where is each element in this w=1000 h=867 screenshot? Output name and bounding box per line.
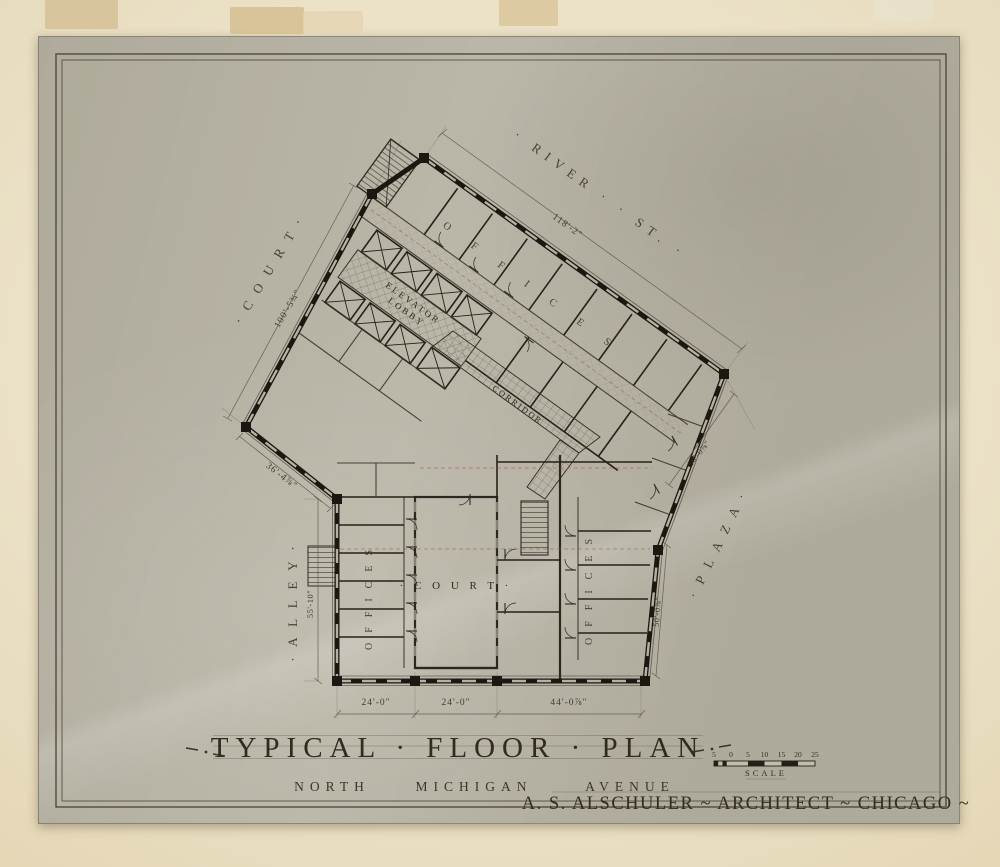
dim-bottom-right-bay: 44'-0⅞" [550,698,587,708]
tape-piece [303,11,363,33]
wing-stair [357,139,420,207]
upper-wing-interior: OFFICES ELEVATOR LOBBY [267,139,721,549]
tape-piece [873,0,933,21]
court-street-label: · C O U R T · [231,213,308,327]
dim-alley-frontage: 55'-10" [305,590,315,618]
dim-bottom-left-bay: 24'-0" [361,698,390,708]
left-offices-label: OFFICES [364,540,375,650]
dim-court-frontage: 100'-5¾" [273,288,304,330]
dim-river-frontage: 118'-2" [550,212,584,240]
lower-block-interior: · C O U R T · OFFICES OFFICES [308,414,704,681]
scale-tick: 5 [712,750,716,759]
scale-bar: 5 0 5 10 15 20 25 SCALE [712,750,819,779]
scale-tick-labels: 5 0 5 10 15 20 25 [712,750,819,759]
scale-tick: 20 [794,750,802,759]
mounting-tape [45,0,933,34]
address-word-michigan: MICHIGAN [416,779,533,794]
scale-label: SCALE [745,768,787,778]
plaza-label: · P L A Z A · [685,488,750,601]
right-offices-label: OFFICES [584,528,595,645]
tape-piece [499,0,558,26]
tape-piece [45,0,118,29]
sheet-border [56,54,946,807]
alley-label: · A L L E Y · [285,542,300,661]
scale-tick: 10 [761,750,769,759]
address-word-north: NORTH [294,779,370,794]
scale-tick: 5 [746,750,750,759]
plan-drawing: OFFICES ELEVATOR LOBBY [0,0,1000,867]
right-office-partitions [497,455,652,633]
scale-tick: 15 [778,750,786,759]
scale-tick: 25 [811,750,819,759]
scale-tick: 0 [729,750,733,759]
tape-piece [230,7,304,34]
dim-plaza-vertical: 50'-0⅞" [651,596,664,627]
sheet-title: TYPICAL · FLOOR · PLAN [211,732,705,764]
architect-signature: A. S. ALSCHULER ~ ARCHITECT ~ CHICAGO ~ [522,794,970,814]
title-block: TYPICAL · FLOOR · PLAN NORTH MICHIGAN AV… [186,732,970,814]
dim-bottom-court-bay: 24'-0" [441,698,470,708]
